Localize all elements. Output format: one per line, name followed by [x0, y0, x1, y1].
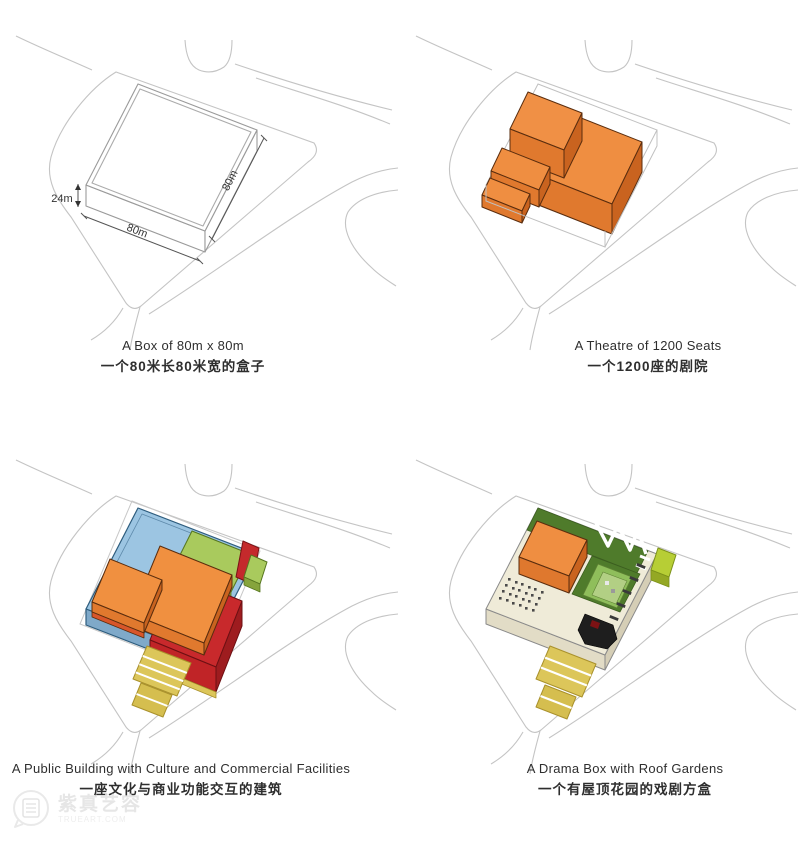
watermark-logo-icon	[8, 786, 54, 832]
caption-box: A Box of 80m x 80m 一个80米长80米宽的盒子	[101, 338, 266, 375]
caption-drama-box: A Drama Box with Roof Gardens 一个有屋顶花园的戏剧…	[527, 761, 724, 798]
caption-theatre: A Theatre of 1200 Seats 一个1200座的剧院	[575, 338, 722, 375]
caption-box-en: A Box of 80m x 80m	[101, 338, 266, 353]
watermark-site: TRUEART.COM	[58, 815, 142, 824]
concept-diagram-sheet: 24m 80m 80m	[0, 0, 800, 848]
roof-garden-massing	[486, 508, 676, 719]
caption-drama-box-en: A Drama Box with Roof Gardens	[527, 761, 724, 776]
caption-drama-box-zh: 一个有屋顶花园的戏剧方盒	[527, 778, 724, 798]
caption-box-zh: 一个80米长80米宽的盒子	[101, 355, 266, 375]
dim-height-label: 24m	[51, 193, 72, 205]
theatre-massing	[482, 92, 642, 234]
caption-theatre-zh: 一个1200座的剧院	[575, 355, 722, 375]
caption-theatre-en: A Theatre of 1200 Seats	[575, 338, 722, 353]
public-building-massing	[86, 508, 267, 717]
caption-public-building-en: A Public Building with Culture and Comme…	[12, 761, 350, 776]
watermark-name: 紫真艺容	[58, 795, 142, 814]
watermark: 紫真艺容 TRUEART.COM	[8, 786, 142, 832]
